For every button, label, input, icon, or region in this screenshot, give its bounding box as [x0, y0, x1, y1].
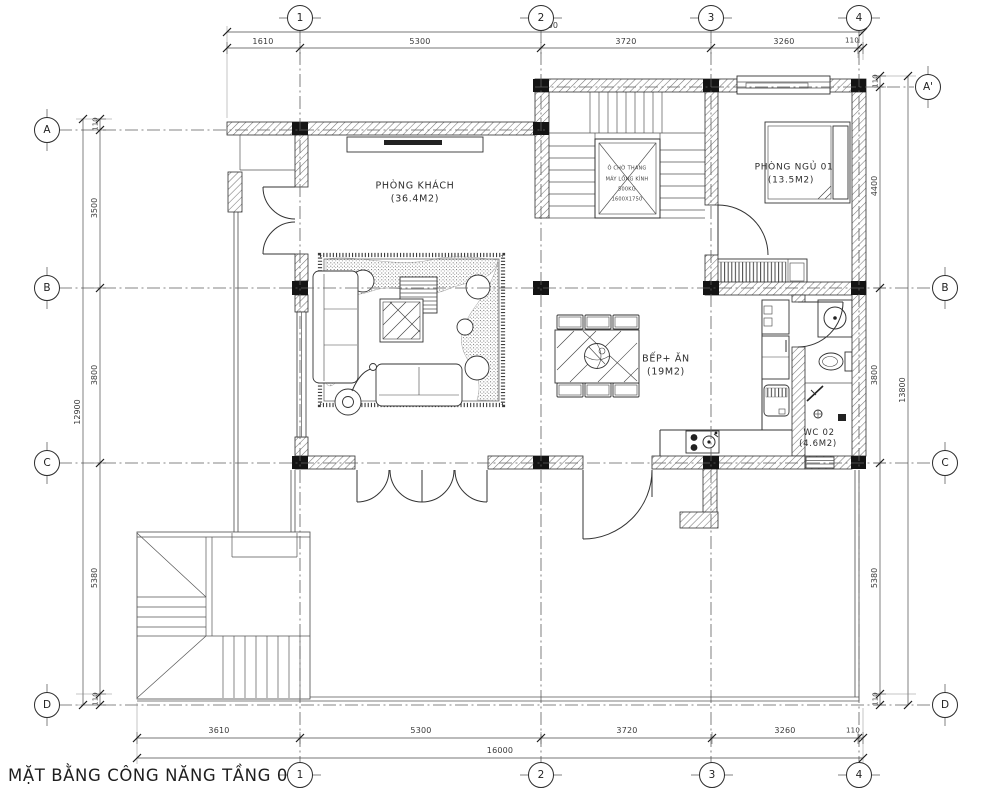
wc-window: [806, 457, 834, 468]
grid-bubble-row-b-left: B: [34, 275, 60, 301]
cushion: [457, 319, 473, 335]
elevator-note-3: 500KG: [618, 188, 636, 193]
living-folding-door: [357, 470, 487, 502]
bed-headboard: [833, 126, 848, 199]
cushion: [465, 356, 489, 380]
grid-bubble-row-c-right: C: [932, 450, 958, 476]
wc-fixtures: [805, 300, 852, 421]
room-area-bedroom: (13.5M2): [768, 177, 814, 186]
dim-bottom-seg-5: 110: [846, 728, 860, 735]
cushion: [466, 275, 490, 299]
dim-left-seg-5: 110: [93, 692, 100, 705]
stove-sink-unit: [686, 431, 719, 453]
grid-bubble-row-b-right: B: [932, 275, 958, 301]
elevator-note-2: MÁY LỒNG KÍNH: [606, 178, 649, 183]
grid-bubble-col-2-top: 2: [528, 5, 554, 31]
dim-top-seg-3: 3720: [615, 38, 636, 46]
dim-top-seg-2: 5300: [409, 38, 430, 46]
dim-left-total: 12900: [74, 399, 82, 424]
plan-drawing: [0, 0, 995, 798]
room-label-kitchen: BẾP+ ĂN: [642, 354, 690, 364]
grid-bubble-row-a-prime-right: A': [915, 74, 941, 100]
dim-bottom-seg-1: 3610: [208, 727, 229, 735]
grid-bubble-col-3-bottom: 3: [699, 762, 725, 788]
dim-left-seg-3: 3800: [91, 365, 99, 385]
dim-bottom-seg-2: 5300: [410, 727, 431, 735]
grid-bubble-row-a-left: A: [34, 117, 60, 143]
grid-bubble-col-1-top: 1: [287, 5, 313, 31]
dim-bottom-total: 16000: [487, 747, 513, 755]
dim-right-seg-3: 3800: [871, 365, 879, 385]
dim-right-total: 13800: [899, 377, 907, 402]
dim-top-seg-4: 3260: [773, 38, 794, 46]
dim-bottom-seg-3: 3720: [616, 727, 637, 735]
room-label-bedroom: PHÒNG NGỦ 01: [755, 164, 834, 173]
room-area-wc: (4.6M2): [799, 440, 837, 449]
bedroom-furniture: [712, 122, 850, 286]
kitchen-terrace-door: [583, 470, 652, 539]
grid-bubble-col-4-bottom: 4: [846, 762, 872, 788]
wc-toilet: [819, 352, 852, 371]
dim-left-seg-2: 3500: [91, 198, 99, 218]
room-area-kitchen: (19M2): [647, 367, 685, 377]
grid-bubble-row-c-left: C: [34, 450, 60, 476]
dim-right-seg-5: 110: [873, 692, 880, 705]
dim-left-seg-1: 110: [93, 117, 100, 130]
dim-right-seg-1: 110: [873, 74, 880, 87]
grid-bubble-row-d-left: D: [34, 692, 60, 718]
grid-bubble-row-d-right: D: [932, 692, 958, 718]
elevator-note-1: Ô CHỜ THANG: [608, 167, 647, 172]
balcony-double-door: [263, 187, 295, 254]
room-label-living: PHÒNG KHÁCH: [375, 181, 454, 191]
elevator-note-4: 1600X1750: [612, 198, 643, 203]
grid-bubble-col-3-top: 3: [698, 5, 724, 31]
room-area-living: (36.4M2): [391, 194, 439, 204]
table-decor: [585, 344, 610, 369]
floorplan-sheet: 1 2 3 4 1 2 3 4 A B C D A' B C D 14000 1…: [0, 0, 995, 798]
dim-top-seg-1: 1610: [252, 38, 273, 46]
dim-right-seg-4: 5380: [871, 568, 879, 588]
bedroom-door: [718, 205, 768, 255]
living-window: [297, 312, 306, 437]
grid-bubble-col-4-top: 4: [846, 5, 872, 31]
dim-right-seg-2: 4400: [871, 176, 879, 196]
kitchen-dining-furniture: [555, 300, 792, 456]
sheet-title: MẶT BẰNG CÔNG NĂNG TẦNG 02: [8, 766, 299, 785]
fridge: [762, 336, 789, 379]
dim-bottom-seg-4: 3260: [774, 727, 795, 735]
grid-bubble-col-2-bottom: 2: [528, 762, 554, 788]
dim-left-seg-4: 5380: [91, 568, 99, 588]
bedroom-window: [737, 76, 830, 94]
kitchen-cabinet: [762, 300, 789, 334]
tv-icon: [384, 140, 442, 145]
dim-top-seg-5: 110: [845, 38, 859, 45]
grid-bubble-col-1-bottom: 1: [287, 762, 313, 788]
room-label-wc: WC 02: [803, 429, 834, 438]
